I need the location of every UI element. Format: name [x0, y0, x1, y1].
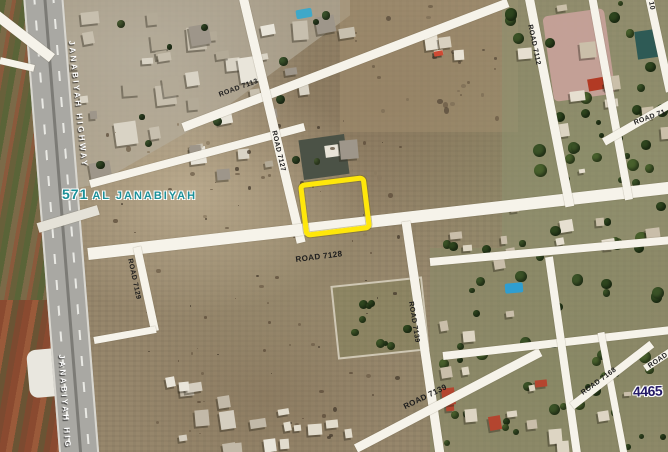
- ground-debris: [481, 93, 485, 96]
- ground-debris: [366, 313, 367, 314]
- building: [463, 330, 476, 342]
- building: [165, 376, 175, 387]
- building: [339, 140, 359, 160]
- ground-debris: [217, 354, 218, 355]
- ground-debris: [318, 346, 320, 348]
- building: [462, 245, 472, 252]
- building: [344, 428, 352, 438]
- ground-debris: [147, 151, 151, 153]
- ground-debris: [268, 174, 271, 177]
- ground-debris: [352, 169, 353, 170]
- building: [462, 366, 470, 375]
- tree: [167, 44, 172, 49]
- ground-debris: [494, 68, 496, 70]
- building: [535, 379, 548, 387]
- building: [216, 169, 230, 182]
- ground-debris: [235, 167, 238, 171]
- ground-debris: [271, 373, 272, 374]
- building: [162, 76, 181, 97]
- ground-debris: [495, 116, 499, 121]
- ground-debris: [311, 343, 315, 345]
- ground-debris: [267, 302, 269, 304]
- building: [123, 82, 140, 96]
- building: [559, 219, 574, 233]
- building: [596, 217, 604, 226]
- ground-debris: [261, 176, 265, 179]
- ground-debris: [206, 141, 210, 145]
- ground-debris: [178, 360, 179, 362]
- block-label: 571AL JANABIYAH: [62, 186, 197, 202]
- tree: [571, 143, 581, 153]
- ground-debris: [355, 40, 357, 42]
- building: [279, 438, 289, 448]
- satellite-map-canvas[interactable]: JANABIYAH HIGHWAY JANABIYAH HIG 571AL JA…: [0, 0, 668, 452]
- building: [264, 438, 277, 452]
- tree: [473, 310, 480, 317]
- tree: [639, 434, 644, 439]
- tree: [513, 33, 524, 44]
- tree: [592, 357, 600, 365]
- building: [556, 237, 565, 245]
- building: [292, 20, 308, 40]
- building: [185, 71, 200, 86]
- tree: [279, 57, 287, 65]
- building: [488, 415, 503, 430]
- ground-debris: [330, 147, 335, 150]
- building: [506, 310, 515, 317]
- building: [464, 409, 477, 424]
- ground-debris: [333, 407, 337, 412]
- building: [557, 4, 568, 11]
- ground-debris: [458, 61, 461, 64]
- building: [506, 410, 517, 417]
- ground-debris: [289, 344, 291, 346]
- building: [527, 420, 538, 430]
- plot-highlight-rectangle[interactable]: [298, 175, 372, 238]
- building: [500, 236, 507, 245]
- building: [597, 410, 610, 421]
- tree: [533, 144, 546, 157]
- building: [217, 395, 231, 409]
- ground-debris: [395, 376, 400, 380]
- building: [82, 31, 95, 45]
- ground-debris: [381, 109, 385, 113]
- ground-debris: [189, 430, 191, 432]
- building: [89, 111, 97, 119]
- building: [308, 423, 322, 435]
- tree: [505, 8, 517, 20]
- ground-debris: [377, 175, 382, 181]
- ground-debris: [210, 189, 213, 190]
- ground-debris: [428, 5, 433, 8]
- ground-debris: [494, 57, 497, 59]
- tree: [96, 161, 104, 169]
- tree: [534, 164, 547, 177]
- tree: [515, 271, 526, 282]
- ground-debris: [406, 98, 408, 101]
- tree: [565, 154, 575, 164]
- building: [187, 97, 199, 110]
- tree: [645, 62, 655, 72]
- tree: [145, 140, 152, 147]
- building: [493, 258, 505, 270]
- building: [454, 49, 464, 60]
- tree: [572, 274, 584, 286]
- ground-debris: [134, 232, 136, 234]
- building: [219, 410, 237, 430]
- ground-debris: [148, 351, 150, 352]
- tree: [660, 434, 666, 440]
- road-label-10-partial: 10: [647, 1, 655, 11]
- building: [557, 440, 570, 452]
- ground-debris: [317, 126, 320, 129]
- ground-debris: [322, 414, 327, 418]
- ground-debris: [225, 227, 228, 229]
- swimming-pool-icon: [505, 282, 524, 294]
- ground-debris: [106, 133, 109, 137]
- ground-debris: [201, 372, 204, 375]
- building: [325, 419, 338, 428]
- ground-debris: [215, 182, 216, 183]
- tree: [604, 218, 611, 225]
- building: [529, 384, 536, 391]
- ground-debris: [397, 235, 400, 239]
- ground-debris: [399, 146, 402, 148]
- building: [440, 367, 452, 379]
- ground-debris: [248, 186, 251, 190]
- tree: [449, 242, 457, 250]
- ground-debris: [437, 99, 443, 104]
- building: [438, 36, 452, 49]
- ground-debris: [191, 352, 193, 354]
- ground-debris: [461, 84, 466, 87]
- ground-debris: [372, 394, 374, 396]
- building: [146, 12, 158, 25]
- building: [284, 67, 297, 76]
- ground-debris: [374, 171, 377, 175]
- tree: [139, 114, 144, 119]
- building: [222, 442, 237, 452]
- tree: [359, 316, 366, 323]
- building: [579, 41, 596, 58]
- ground-debris: [302, 418, 304, 419]
- ground-debris: [388, 193, 393, 198]
- ground-debris: [263, 349, 266, 352]
- building: [293, 424, 300, 430]
- ground-debris: [450, 102, 455, 106]
- ground-debris: [126, 146, 131, 152]
- building: [149, 126, 161, 140]
- zone-barren-top-center: [340, 0, 518, 132]
- building: [661, 127, 668, 140]
- building: [624, 391, 631, 395]
- block-name: AL JANABIYAH: [92, 190, 197, 202]
- ground-debris: [190, 172, 195, 176]
- tree: [550, 226, 561, 237]
- block-number: 571: [62, 186, 88, 202]
- ground-debris: [372, 65, 375, 68]
- building: [142, 57, 154, 64]
- building: [194, 410, 209, 427]
- building: [569, 90, 585, 101]
- ground-debris: [319, 390, 323, 393]
- ground-debris: [370, 252, 372, 254]
- tree: [592, 153, 602, 163]
- building: [264, 160, 273, 167]
- ground-debris: [393, 292, 397, 294]
- plot-number-label: 4465: [633, 382, 663, 399]
- ground-debris: [115, 132, 117, 133]
- building: [80, 11, 99, 24]
- ground-debris: [121, 203, 123, 205]
- ground-debris: [256, 275, 259, 278]
- tree: [603, 289, 611, 297]
- tree: [314, 158, 320, 164]
- building: [179, 382, 190, 392]
- tree: [519, 240, 525, 246]
- building: [114, 121, 139, 147]
- ground-debris: [204, 316, 208, 318]
- tree: [641, 140, 651, 150]
- ground-debris: [177, 123, 179, 126]
- tree: [469, 288, 475, 294]
